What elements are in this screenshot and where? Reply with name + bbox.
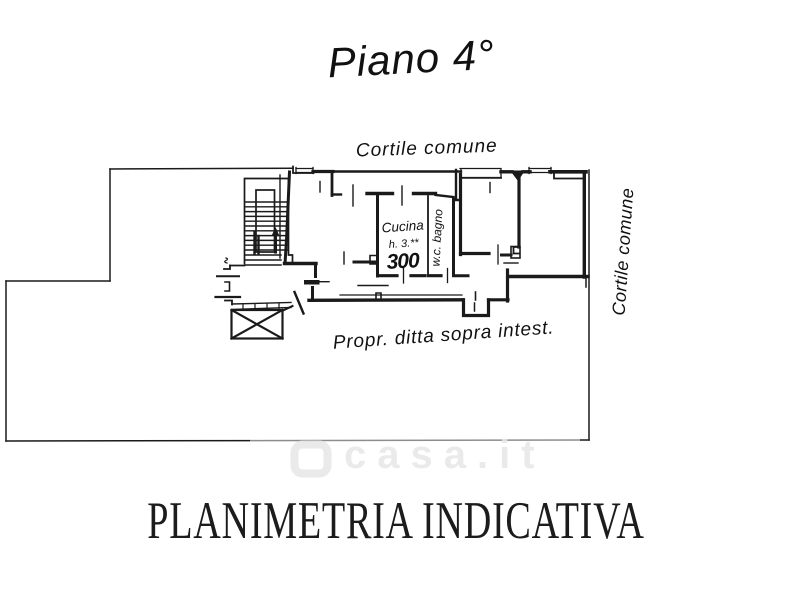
- svg-text:Piano 4°: Piano 4°: [327, 31, 496, 87]
- svg-text:Cucina: Cucina: [381, 218, 424, 236]
- svg-text:w.c. bagno: w.c. bagno: [429, 208, 446, 266]
- svg-text:Cortile comune: Cortile comune: [356, 136, 498, 162]
- svg-text:Propr. ditta sopra intest.: Propr. ditta sopra intest.: [332, 317, 555, 353]
- svg-text:casa.it: casa.it: [344, 433, 546, 477]
- svg-text:Cortile comune: Cortile comune: [609, 187, 638, 316]
- svg-text:300: 300: [386, 249, 421, 274]
